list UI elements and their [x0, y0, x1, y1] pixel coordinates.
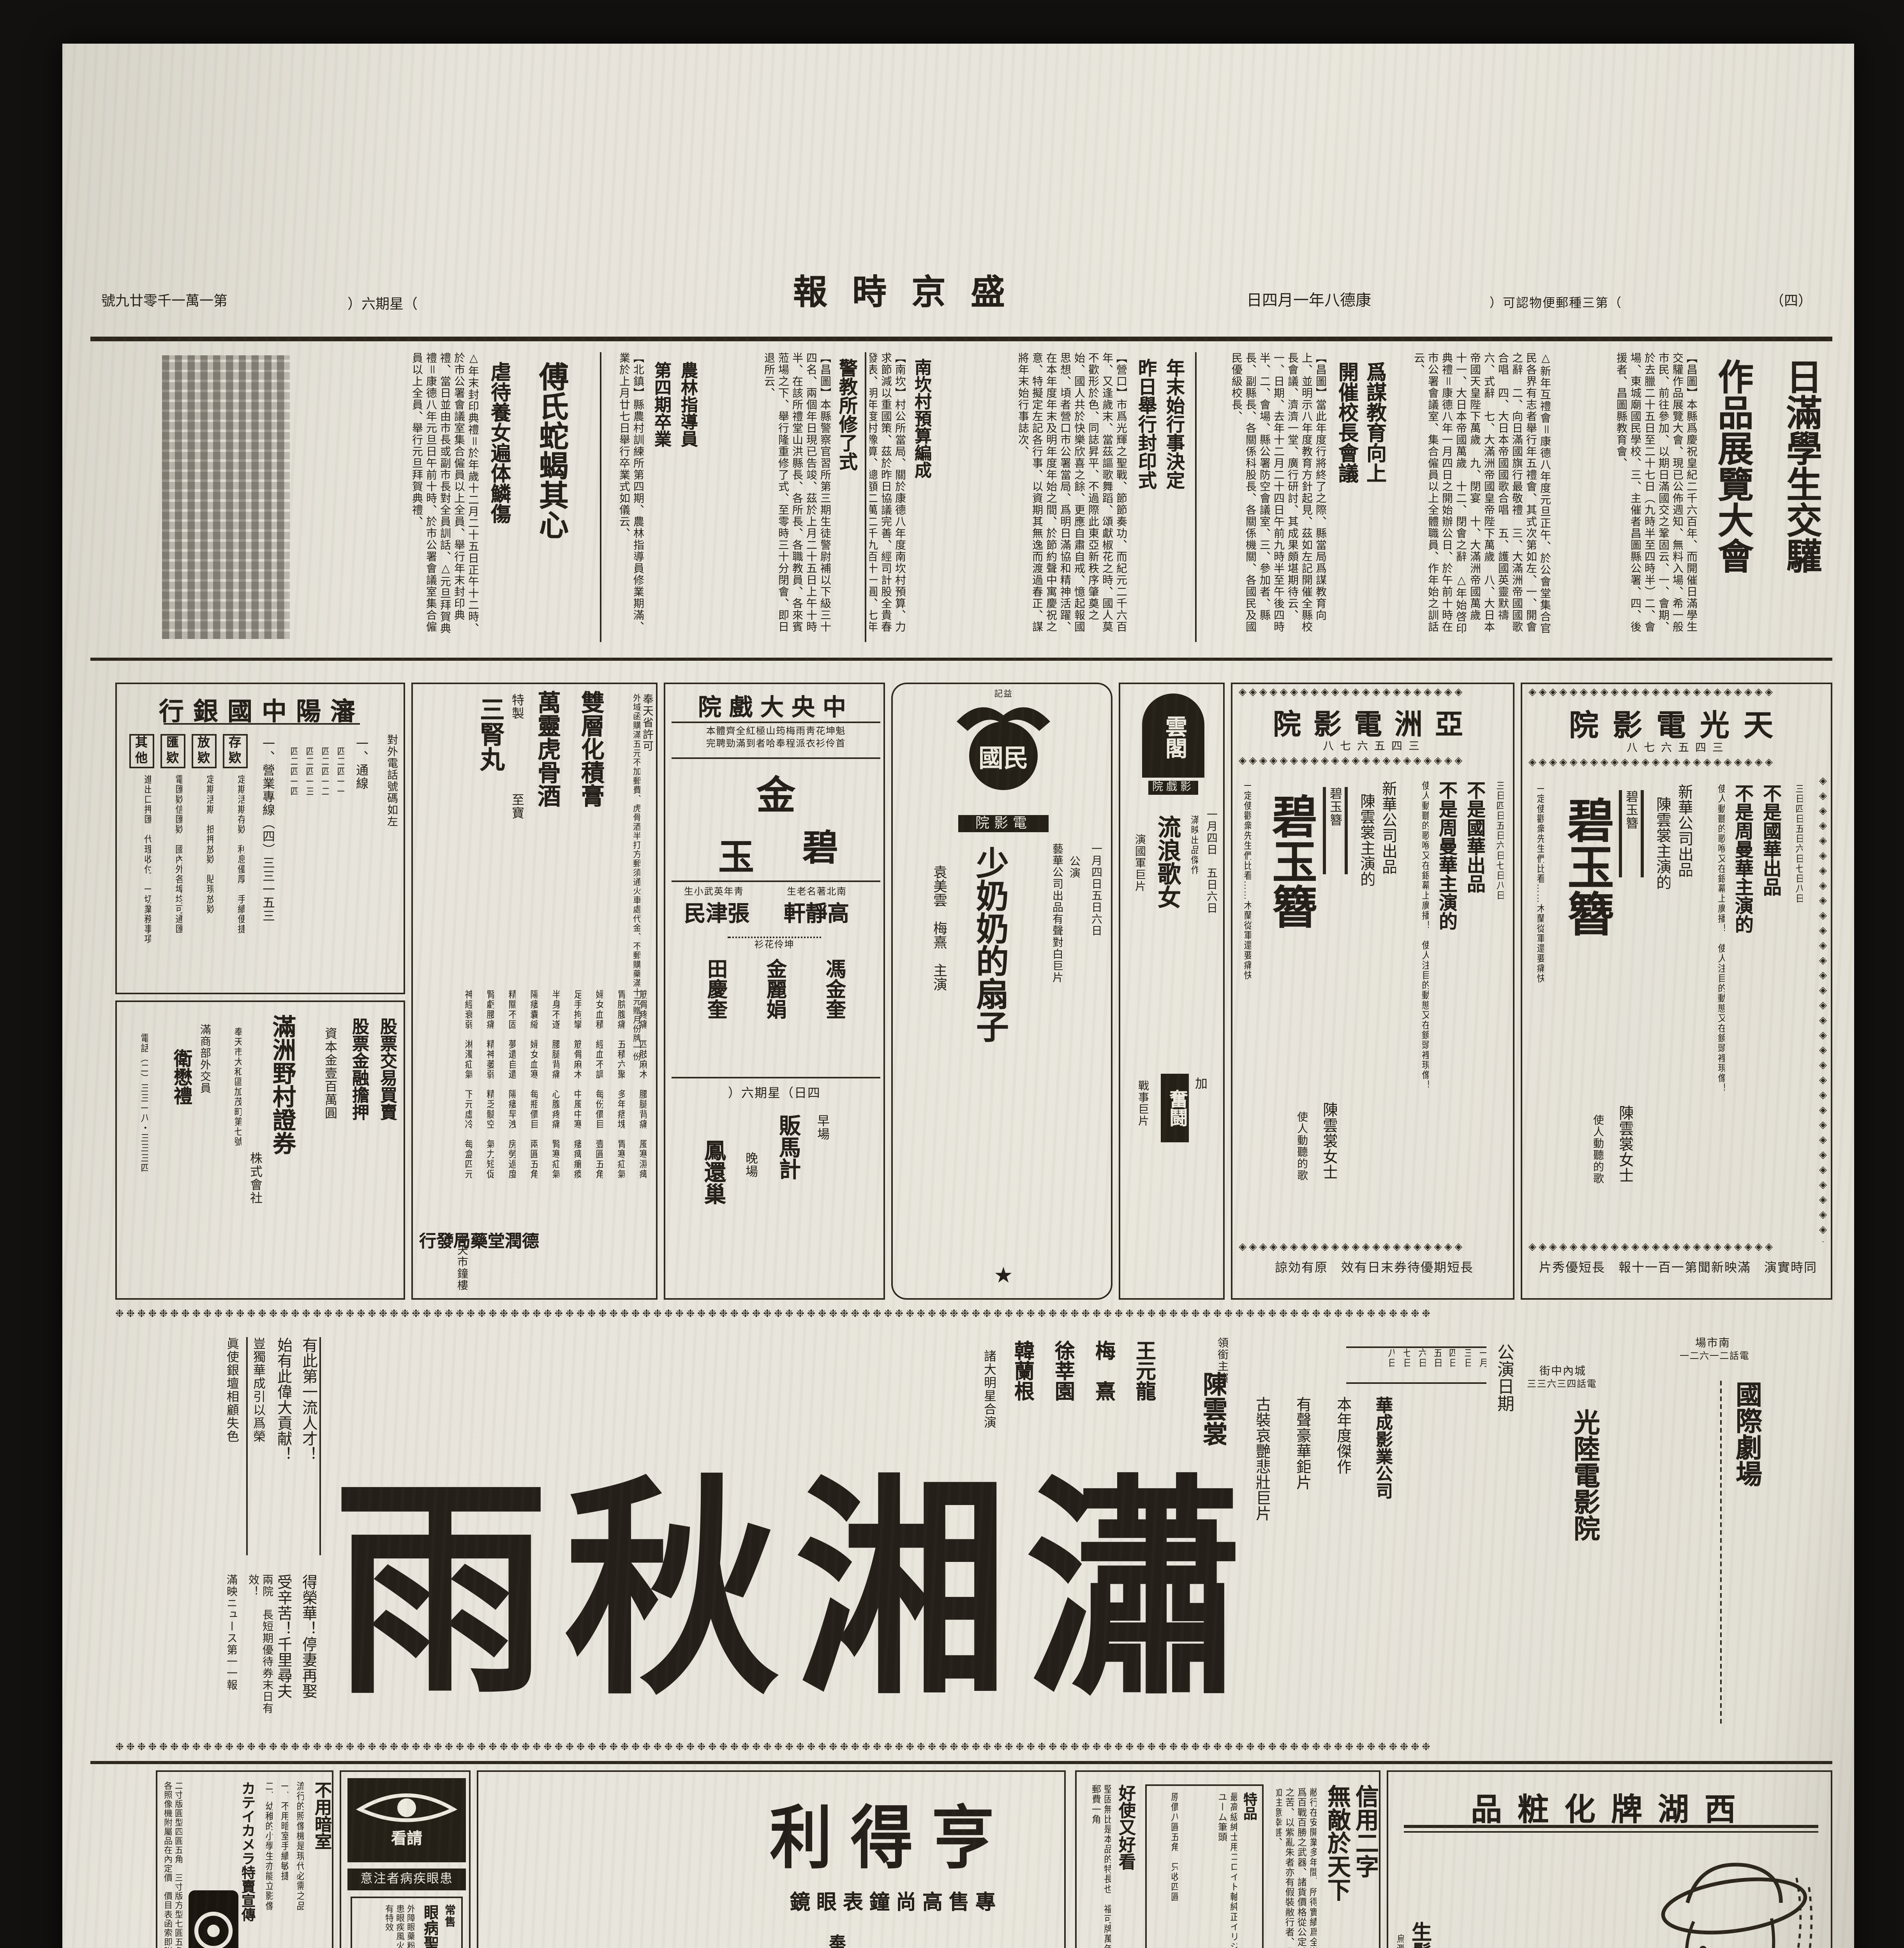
yunge-maker: 滿映出品傑作: [1186, 815, 1198, 1064]
xihu-product-hairoil: 生髮油: [1407, 1922, 1432, 1948]
zhongyang-name: 院戲大央中: [672, 690, 880, 723]
zhongyang-actor-feng: 馮金奎: [821, 958, 846, 1068]
ornament-border: ◈◈◈◈◈◈◈◈◈◈◈◈◈◈◈◈◈◈◈◈◈◈◈◈: [1528, 1242, 1828, 1255]
zhongyang-star-bi: 碧: [802, 818, 838, 871]
pen-item-price: 原價八圓五角 只收四圓: [1156, 1792, 1178, 1948]
article-body-continuation: △年末封印典禮＝於年歲十二月二十五日正午十二時、於市公署會議室集合僱員以上全員、…: [296, 352, 480, 642]
derun-symptom-grid: 筋骨疼痛 四肢麻木 腰腿背痛 風寒濕痺 胃脘腹痛 五積六聚 多年痞塊 胃寒疝氣 …: [460, 990, 653, 1223]
yunge-extra-label: 加: [1195, 1077, 1208, 1092]
xihu-product-hairoil-desc: 烏潤光澤 祛垢養血: [1391, 1934, 1403, 1948]
grand-date: 五日: [1428, 1348, 1440, 1382]
derun-permit: 奉天省許可: [640, 693, 654, 974]
derun-seller: 行發局藥堂潤德: [419, 1233, 539, 1295]
nomura-agent: 衛懋禮: [170, 1049, 193, 1236]
yunge-logo: 雲閣: [1142, 693, 1204, 778]
column-rule: [865, 352, 866, 642]
zhongyang-actor-zhang: 民津張: [684, 902, 749, 929]
derun-col: 神經衰弱 淋濁疝氣 下元虛冷 每盒四元: [460, 990, 472, 1223]
headline-principals-meeting: 開催校長會議: [1334, 362, 1359, 533]
yunge-logo-sub: 院戲影: [1148, 781, 1198, 795]
tianguang-film-title: 碧玉簪: [1550, 796, 1619, 1064]
ornament-border: ◈◈◈◈◈◈◈◈◈◈◈◈◈◈◈◈◈◈◈◈◈◈: [1239, 687, 1510, 700]
derun-col: 婦女血積 經血不調 每份價目 壹圓五角: [591, 990, 603, 1223]
eye-c2: 眼病聖藥: [418, 1904, 437, 1948]
grand-venue2-name: 光陸電影院: [1564, 1409, 1603, 1736]
grand-cast: 王元龍: [1131, 1340, 1156, 1449]
yunge-logo-text: 雲閣: [1158, 703, 1189, 771]
bank-rule: [164, 723, 360, 725]
derun-col: 精關不固 夢遺自遺 陽痿早洩 房勞過度: [503, 990, 515, 1223]
guomin-yiji: 記益: [949, 690, 1058, 701]
bank-svc-other: 進出口押匯 代理收付 一切業務事項: [129, 775, 151, 977]
camera-line1: 流行的照像機是現代必需之品: [291, 1781, 303, 1948]
headline-nankan-budget: 南坎村預算編成: [910, 358, 931, 530]
guomin-cast: 袁美雲 梅熹 主演: [930, 865, 947, 1208]
grand-date: 四日: [1444, 1348, 1456, 1382]
ad-tianguang-cinema: ◈◈◈◈◈◈◈◈◈◈◈◈◈◈◈◈◈◈◈◈◈◈◈◈ 院影電光天 八七六五四三 ◈◈…: [1521, 683, 1832, 1300]
zhongyang-label-laosheng: 生老名著北南: [787, 888, 847, 900]
yazhou-bottom-strip: 諒効有原 效有日末券待優期短長: [1242, 1261, 1507, 1276]
ad-zhongyang-theatre: 院戲大央中 本體齊全紅極山筠梅雨靑花坤魁 完聘勁滿到者哈奉程派衣衫伶首 金 碧 …: [664, 683, 885, 1300]
grand-slogan-2: 始有此偉大貢献！: [271, 1337, 291, 1555]
nomura-agent-label: 滿商部外交員: [198, 1024, 212, 1195]
bank-business-line: 一、營業專線（四）三三一五三: [260, 737, 276, 971]
guomin-film-title: 少奶奶的扇子: [968, 846, 1014, 1267]
yazhou-actress: 陳雲裳女士: [1317, 1102, 1336, 1242]
pen-note1-text: 堅固無比是本品的特長也 福可牌萬年筆工廠犧牲贈送樣品 請速函購 外埠加郵費一角: [1089, 1784, 1111, 1948]
grand-cast: 徐莘園: [1050, 1340, 1075, 1449]
pen-body-text: 敝行在安開業多年間、所得實績爲全滿獨家、會社惟以信用二字爲百戰百勝之武器、諸貨價…: [1276, 1787, 1317, 1948]
grand-slogan-4: 眞使銀壇相顧失色: [224, 1337, 240, 1555]
headline-education: 爲謀教育向上: [1362, 362, 1387, 517]
ornament-border: ◈◈◈◈◈◈◈◈◈◈◈◈◈◈◈◈◈◈◈◈◈◈: [1239, 756, 1510, 768]
derun-col: 足手拘攣 筋骨麻木 中風中寒 痿痺癱瘓: [569, 990, 581, 1223]
eye-look-label: 看請: [347, 1831, 466, 1851]
grand-venue2-loc: 街中內城: [1539, 1365, 1586, 1379]
ornament-border: ◈◈◈◈◈◈◈◈◈◈◈◈◈◈◈◈◈◈◈◈◈◈◈◈: [1528, 757, 1828, 770]
svg-text:國民: 國民: [978, 745, 1028, 772]
rule: [1404, 1831, 1818, 1833]
article-body: 【昌圖】本縣爲慶祝皇紀二千六百年、而開催日滿學生交驩作品展覽大會、現已公佈週知、…: [1555, 352, 1698, 642]
bank-svc-header-loan: 放欵: [192, 734, 217, 768]
grand-date: 一月: [1474, 1348, 1486, 1382]
headline-fourth-graduation: 第四期卒業: [650, 362, 671, 517]
tianguang-phone-digits: 八七六五四三: [1581, 742, 1775, 756]
hengdeli-logo: 利得亨: [728, 1783, 1055, 1882]
grand-date: 七日: [1398, 1348, 1410, 1382]
nomura-phone: 電話（二）三三一八・三三三四: [136, 1033, 148, 1267]
guomin-logo: 國民 記益: [949, 693, 1058, 812]
weekday: ）六期星（: [347, 296, 418, 313]
grand-venue2-tel: 三三六三四話電: [1527, 1381, 1597, 1393]
rule: [672, 1077, 880, 1078]
tianguang-slogan3: 一定使觀衆先生們比看……木蘭從軍還要痛快: [1532, 784, 1544, 1127]
masthead-date: 日四月一年八德康: [1246, 293, 1371, 312]
section-rule: [90, 658, 1832, 660]
pen-note1-header: 好使又好看: [1114, 1784, 1135, 1909]
derun-col: 筋骨疼痛 四肢麻木 腰腿背痛 風寒濕痺: [634, 990, 646, 1223]
illegible-text-columns: [162, 355, 290, 639]
grand-date: 八日: [1383, 1348, 1395, 1382]
nomura-kind: 株式會社: [248, 1152, 263, 1276]
camera-prices: 二寸版圓型四圓五角 三寸版方型七圓五角 四寸判方型八圓五角 大型十三圓五角 各照…: [164, 1781, 182, 1948]
headline-abused-daughter: 虐待養女遍体鱗傷: [486, 362, 511, 626]
tianguang-actress: 陳雲裳女士: [1613, 1105, 1632, 1245]
zhongyang-actor-jin: 金麗娟: [762, 958, 787, 1068]
eye-icon: [347, 1778, 466, 1831]
nomura-capital: 資本金壹百萬圓: [323, 1027, 338, 1230]
bank-svc-deposit: 定期活期存欵 利息優厚 手續便捷: [223, 775, 245, 977]
nomura-name: 滿洲野村證券: [266, 1015, 299, 1289]
derun-col: 腎虧腰痛 精神萎弱 精乏髓空 氣力短促: [481, 990, 494, 1223]
yazhou-claim-2: 不是周曼華主演的: [1435, 781, 1458, 1061]
grand-slogan-5: 得榮華！停妻再娶: [296, 1574, 316, 1736]
derun-col: 胃脘腹痛 五積六聚 多年痞塊 胃寒疝氣: [612, 990, 624, 1223]
yunge-film-title: 流浪歌女: [1151, 815, 1184, 1064]
guomin-dates: 一月四日五日六日: [1089, 843, 1103, 1061]
tianguang-claim-2: 不是周曼華主演的: [1731, 784, 1754, 1064]
grand-date: 六日: [1413, 1348, 1425, 1382]
newspaper-scan: 號九廿零千一萬一第 ）六期星（ 報時京盛 日四月一年八德康 ）可認物便郵種三第（…: [0, 0, 1904, 1948]
bank-tel-2: 四二四一二: [316, 746, 328, 918]
zhongyang-actor-tian: 田慶奎: [703, 958, 728, 1068]
headline-jiman-exchange: 日滿學生交驩: [1773, 358, 1826, 639]
newspaper-page: 號九廿零千一萬一第 ）六期星（ 報時京盛 日四月一年八德康 ）可認物便郵種三第（…: [62, 44, 1854, 1948]
grand-slogan-1: 有此第一流人才！: [296, 1337, 320, 1555]
rule: [672, 757, 880, 759]
pen-item-special: 特品 最高級紳士用コロイト軸純正イリジユーム筆頭 原價八圓五角 只收四圓: [1145, 1784, 1264, 1948]
grand-slogan-3: 豈獨華成引以爲榮: [246, 1337, 266, 1555]
bank-name: 行銀國中陽瀋: [129, 690, 394, 728]
derun-col: 半身不遂 腰腿背痛 心腹疼痛 腎寒疝氣: [547, 990, 559, 1223]
yazhou-slogans: 使人動聽的歌喉又在銀幕上廣播！ 使人注目的動態又在鏡頭裡現像！: [1401, 781, 1429, 1108]
tianguang-film-box: 碧玉簪: [1619, 790, 1644, 877]
ad-hengdeli-watches: 利得亨 鏡眼表鐘尚高售專 奉天城內中街 765: [477, 1770, 1066, 1948]
tianguang-star: 陳雲裳主演的: [1650, 796, 1670, 1046]
grand-film-title: 雨秋湘瀟: [333, 1457, 1424, 1743]
article-body: 【營口】市爲光輝之聖戰、節節奏功、而紀元二千六百年、又逢歲末、當茲謳歌舞蹈、頌獻…: [941, 352, 1128, 642]
yunge-note: 演國軍巨片: [1133, 834, 1147, 1052]
page-number: （四）: [1770, 293, 1812, 310]
guomin-dates2: 公演: [1067, 856, 1081, 949]
eye-body: 外障眼藥粉每包四角（主治）不論遠近久患眼疾風火眼流行眼內障雲翳努肉攀睛均有特效: [358, 1904, 414, 1948]
pen-headline-2: 無敵於天下: [1323, 1784, 1351, 1948]
yunge-dates: 一月四日 五日六日: [1204, 809, 1218, 1058]
yazhou-film-title: 碧玉簪: [1257, 793, 1323, 1058]
tianguang-claim-1: 不是國華出品: [1759, 784, 1782, 1033]
eye-warning: 意注者病疾眼患: [347, 1869, 466, 1890]
camera-line2: 一、不用暗室手續敏捷: [276, 1781, 288, 1948]
xihu-title: 品粧化牌湖西: [1404, 1784, 1818, 1830]
bank-tel-4: 四二四一四: [285, 746, 297, 918]
hengdeli-slogan: 鏡眼表鐘尚高售專: [743, 1890, 1049, 1915]
yazhou-slogan3: 一定使觀衆先生們比看……木蘭從軍還要痛快: [1239, 781, 1251, 1124]
bank-svc-remit: 電匯欵信匯欵 國內外各埠均可通匯: [160, 775, 182, 977]
nomura-stock-trade: 股票交易買賣: [376, 1018, 397, 1205]
tianguang-name: 院影電光天: [1532, 703, 1825, 745]
column-rule: [1195, 352, 1197, 642]
headline-agri-instructors: 農林指導員: [676, 362, 697, 517]
bank-svc-header-deposit: 存欵: [223, 734, 248, 768]
yunge-extra-note: 戰事巨片: [1136, 1080, 1150, 1205]
headline-seal-ceremony: 昨日舉行封印式: [1134, 358, 1158, 539]
yunge-extra-film: 奮鬪: [1161, 1074, 1189, 1142]
rule: [1404, 1825, 1818, 1829]
camera-illustration: [182, 1887, 245, 1948]
ad-bank-of-china: 行銀國中陽瀋 對外電話號碼如左 一、通線 四二四一一 四二四一二 四二四一三 四…: [115, 683, 405, 994]
tianguang-maker: 新華公司出品: [1672, 784, 1691, 1033]
grand-slogan-8: 滿映ニュース第一一報: [224, 1574, 238, 1736]
tianguang-actress-note: 使人動聽的歌: [1591, 1114, 1605, 1239]
ornament-border: ❉❉❉❉❉❉❉❉❉❉❉❉❉❉❉❉❉❉❉❉❉❉❉❉❉❉❉❉❉❉❉❉❉❉❉❉❉❉❉❉…: [115, 1742, 1832, 1755]
bank-svc-loan: 定期活期 抵押放欵 貼現放欵: [192, 775, 213, 977]
derun-product-wine: 萬靈虎骨酒: [531, 690, 564, 986]
grand-cast: 梅 熹: [1091, 1340, 1116, 1449]
zhongyang-show1: 販馬計: [774, 1114, 801, 1255]
zhongyang-star-yu: 玉: [718, 828, 754, 880]
masthead-title: 報時京盛: [639, 265, 1184, 315]
bank-tel-3: 四二四一三: [301, 746, 313, 918]
zhongyang-actor-gao: 軒靜高: [784, 902, 849, 929]
article-body: 【昌圖】當此年度行將終了之際、縣當局爲謀教育向上、並明示八年度教育方針起見、茲如…: [1203, 352, 1328, 642]
eye-ad-header: 看請: [347, 1778, 466, 1862]
guomin-logo-sub: 院影電: [958, 815, 1049, 832]
grand-venue1-name: 國際劇場: [1720, 1381, 1765, 1724]
rule: [672, 722, 880, 723]
derun-col: 陽痿囊縮 婦女血寒 每瓶價目 兩圓五角: [525, 990, 537, 1223]
article-body-list: △新年互禮會＝康德八年度元旦正午、於公會堂集合官民各界有志者舉行年五禮會、其式次…: [1412, 352, 1552, 642]
derun-product-pill: 三腎丸: [469, 697, 506, 930]
yazhou-dates: 三日四日五日六日七日八日: [1491, 781, 1503, 968]
column-rule: [600, 352, 601, 642]
zhongyang-label-xiaosheng: 生小武英年靑: [684, 888, 744, 900]
ornament-border: ❉❉❉❉❉❉❉❉❉❉❉❉❉❉❉❉❉❉❉❉❉❉❉❉❉❉❉❉❉❉❉❉❉❉❉❉❉❉❉❉…: [115, 1309, 1832, 1322]
grand-date: 三日: [1459, 1348, 1471, 1382]
pen-item-label: 特品: [1240, 1792, 1257, 1886]
eye-body-box: 常售 眼病聖藥 外障眼藥粉每包四角（主治）不論遠近久患眼疾風火眼流行眼內障雲翳努…: [351, 1897, 463, 1948]
ad-xiaoxiang-qiuyu: 場市南 一二六一二話電 國際劇場 街中內城 三三六三四話電 光陸電影院 公演日期…: [115, 1325, 1832, 1739]
section-rule: [90, 1761, 1832, 1763]
ad-xihu-cosmetics: 品粧化牌湖西 香蜜粉 容顏嬌美 滋潤清秀 花露水 氣味芬芳 提神醒腦 雪花膏 香…: [1387, 1770, 1832, 1948]
zhongyang-star-jin: 金: [721, 765, 830, 821]
headline-yearend-events: 年末始行事決定: [1162, 358, 1186, 539]
tianguang-slogans: 使人動聽的歌喉又在銀幕上廣播！ 使人注目的動態又在鏡頭裡現像！: [1697, 784, 1725, 1111]
ornament-border: ◈◈◈◈◈◈◈◈◈◈◈◈◈◈◈◈◈◈◈◈◈◈◈◈: [1528, 687, 1828, 700]
zhongyang-intro-2: 完聘勁滿到者哈奉程派衣衫伶首: [670, 740, 882, 752]
pen-item-desc: 最高級紳士用コロイト軸純正イリジユーム筆頭: [1206, 1792, 1237, 1948]
grand-dates: 一月 三日 四日 五日 六日 七日 八日: [1346, 1346, 1486, 1384]
pen-headline-1: 信用二字: [1351, 1784, 1379, 1925]
star-icon: ★: [980, 1264, 1027, 1290]
ad-yazhou-cinema: ◈◈◈◈◈◈◈◈◈◈◈◈◈◈◈◈◈◈◈◈◈◈ 院影電洲亞 八七六五四三 ◈◈◈◈…: [1231, 683, 1514, 1300]
yazhou-phone-digits: 八七六五四三: [1279, 740, 1469, 754]
grand-slogan-7: 兩院 長短期優待券末日有效！: [246, 1574, 274, 1736]
zhongyang-show1-label: 早場: [815, 1114, 830, 1177]
article-body: 【北鎮】縣農村訓練所第四期、農林指導員修業期滿、業於上月廿七日舉行卒業式如儀云、: [605, 352, 645, 642]
bank-svc-header-remit: 匯欵: [160, 734, 185, 768]
grand-cast: 韓蘭根: [1010, 1340, 1035, 1449]
yazhou-name: 院影電洲亞: [1242, 703, 1507, 743]
ad-guomin-cinema: 國民 記益 院影電 一月四日五日六日 公演 藝華公司出品有聲對白巨片 少奶奶的扇…: [891, 683, 1112, 1300]
nomura-address: 奉天市大和區加茂町第七號: [229, 1027, 241, 1261]
derun-pill-prefix2: 至寶: [509, 793, 525, 887]
ad-nomura-securities: 股票交易買賣 股票金融擔押 資本金壹百萬圓 滿洲野村證券 株式會社 奉天市大和區…: [115, 1000, 405, 1300]
hengdeli-location: 奉天城內中街: [824, 1934, 845, 1948]
bank-svc-header-other: 其他: [129, 734, 154, 768]
watch-illustration: 765: [572, 1922, 806, 1948]
bank-phone-note: 對外電話號碼如左: [385, 734, 399, 921]
nomura-stock-finance: 股票金融擔押: [347, 1018, 368, 1205]
derun-pill-prefix: 特製: [509, 693, 525, 787]
eagle-logo-graphic: 國民: [949, 693, 1058, 812]
ornament-border: ◈◈◈◈◈◈◈◈◈◈◈◈◈◈◈◈◈◈◈◈◈◈◈◈◈◈◈◈◈◈◈◈◈◈◈◈: [1815, 775, 1828, 1242]
postal-permit: ）可認物便郵種三第（: [1490, 296, 1622, 312]
article-body: 【南坎】村公所當局、關於康德八年度南坎村預算、力求節減以重國策、茲於昨日協議完善…: [869, 352, 907, 642]
bank-line-label: 一、通線: [354, 737, 369, 877]
grand-venue1-tel: 一二六一二話電: [1680, 1353, 1749, 1365]
woman-illustration: [1622, 1847, 1825, 1948]
zhongyang-show2-label: 晚場: [743, 1152, 759, 1214]
grand-schedule-label: 公演日期: [1493, 1343, 1514, 1452]
bank-services: 存欵 定期活期存欵 利息優厚 手續便捷 放欵 定期活期 抵押放欵 貼現放欵 匯欵…: [126, 734, 254, 983]
ad-fountain-pen: 信用二字 無敵於天下 敝行在安開業多年間、所得實績爲全滿獨家、會社惟以信用二字爲…: [1075, 1770, 1380, 1948]
zhongyang-label-kunling: 衫花伶坤: [728, 937, 821, 953]
headline-police-school: 警教所修了式: [835, 358, 859, 530]
ornament-border: ◈◈◈◈◈◈◈◈◈◈◈◈◈◈◈◈◈◈◈◈◈◈: [1239, 1242, 1510, 1255]
yazhou-film-box: 碧玉簪: [1323, 787, 1348, 874]
yazhou-actress-note: 使人動聽的歌: [1295, 1111, 1309, 1236]
zhongyang-show2: 鳳還巢: [700, 1139, 726, 1279]
tianguang-dates: 三日四日五日六日七日八日: [1790, 784, 1802, 971]
yazhou-star: 陳雲裳主演的: [1354, 793, 1373, 1043]
masthead-rule: [90, 337, 1832, 341]
tianguang-bottom-strip: 片秀優短長 報十一百一第聞新映滿 演實時同: [1532, 1261, 1825, 1276]
bank-tel-1: 四二四一一: [332, 746, 344, 918]
zhongyang-day: ）六期星（日四: [681, 1086, 868, 1102]
issue-number: 號九廿零千一萬一第: [101, 293, 227, 310]
ad-eye-medicine: 看請 意注者病疾眼患 常售 眼病聖藥 外障眼藥粉每包四角（主治）不論遠近久患眼疾…: [340, 1770, 471, 1948]
ad-yunge-cinema: 雲閣 院戲影 一月四日 五日六日 滿映出品傑作 流浪歌女 演國軍巨片 加 奮鬪 …: [1119, 683, 1225, 1300]
rule: [672, 880, 880, 882]
zhongyang-intro-1: 本體齊全紅極山筠梅雨靑花坤魁: [670, 728, 882, 740]
ad-deruntang-medicine: 奉天省許可 外域函購滿五元不加郵費、虎骨酒半打方郵須通火車處代金、不郵購藥滿十元…: [411, 683, 658, 1300]
yazhou-maker: 新華公司出品: [1376, 781, 1395, 1030]
derun-product-paste: 雙層化積膏: [575, 690, 608, 986]
grand-venue1-loc: 場市南: [1695, 1337, 1730, 1351]
ad-camera: 不用暗室 流行的照像機是現代必需之品 一、不用暗室手續敏捷 二、幼稚的小學生亦能…: [156, 1770, 333, 1948]
yazhou-claim-1: 不是國華出品: [1463, 781, 1486, 1030]
guomin-maker: 藝華公司出品有聲對白巨片: [1036, 843, 1064, 1202]
article-body: 【昌圖】本縣警察官習所第三期生徒警尉補以下級三十四名、兩個年日現已告竣、茲於上月…: [720, 352, 832, 642]
headline-works-exhibition: 作品展覽大會: [1705, 358, 1758, 639]
camera-headline: 不用暗室: [310, 1781, 331, 1875]
camera-line3: 二、幼稚的小學生亦能立影像: [260, 1781, 272, 1948]
eye-c1: 常售: [443, 1904, 457, 1948]
headline-fu-viper-heart: 傅氏蛇蝎其心: [530, 362, 572, 611]
